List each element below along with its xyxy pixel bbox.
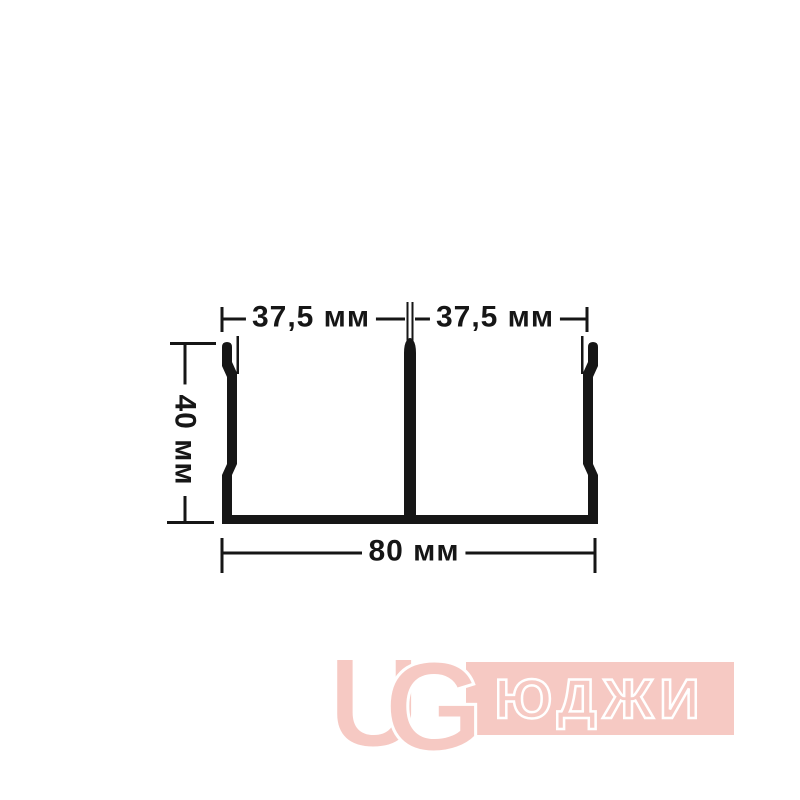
watermark-brand-text: ЮДЖИ (494, 671, 705, 727)
dimension-label-top-left: 37,5 мм (246, 301, 376, 334)
center-rib-extension-line-right (412, 302, 414, 349)
watermark-letter-g: G (384, 644, 484, 772)
dimension-label-bottom: 80 мм (362, 535, 465, 568)
center-rib-extension-line-left (407, 302, 409, 349)
watermark-text-box: ЮДЖИ (466, 662, 734, 735)
dimension-label-left: 40 мм (169, 384, 202, 495)
drawing-canvas: 37,5 мм 37,5 мм 40 мм 80 мм U G ЮДЖИ (0, 0, 800, 800)
profile-cross-section-shape (222, 338, 598, 524)
watermark-logo: U G ЮДЖИ (326, 630, 746, 760)
right-groove-inner-line (581, 336, 584, 374)
left-groove-inner-line (237, 336, 240, 374)
dimension-label-top-right: 37,5 мм (430, 301, 560, 334)
